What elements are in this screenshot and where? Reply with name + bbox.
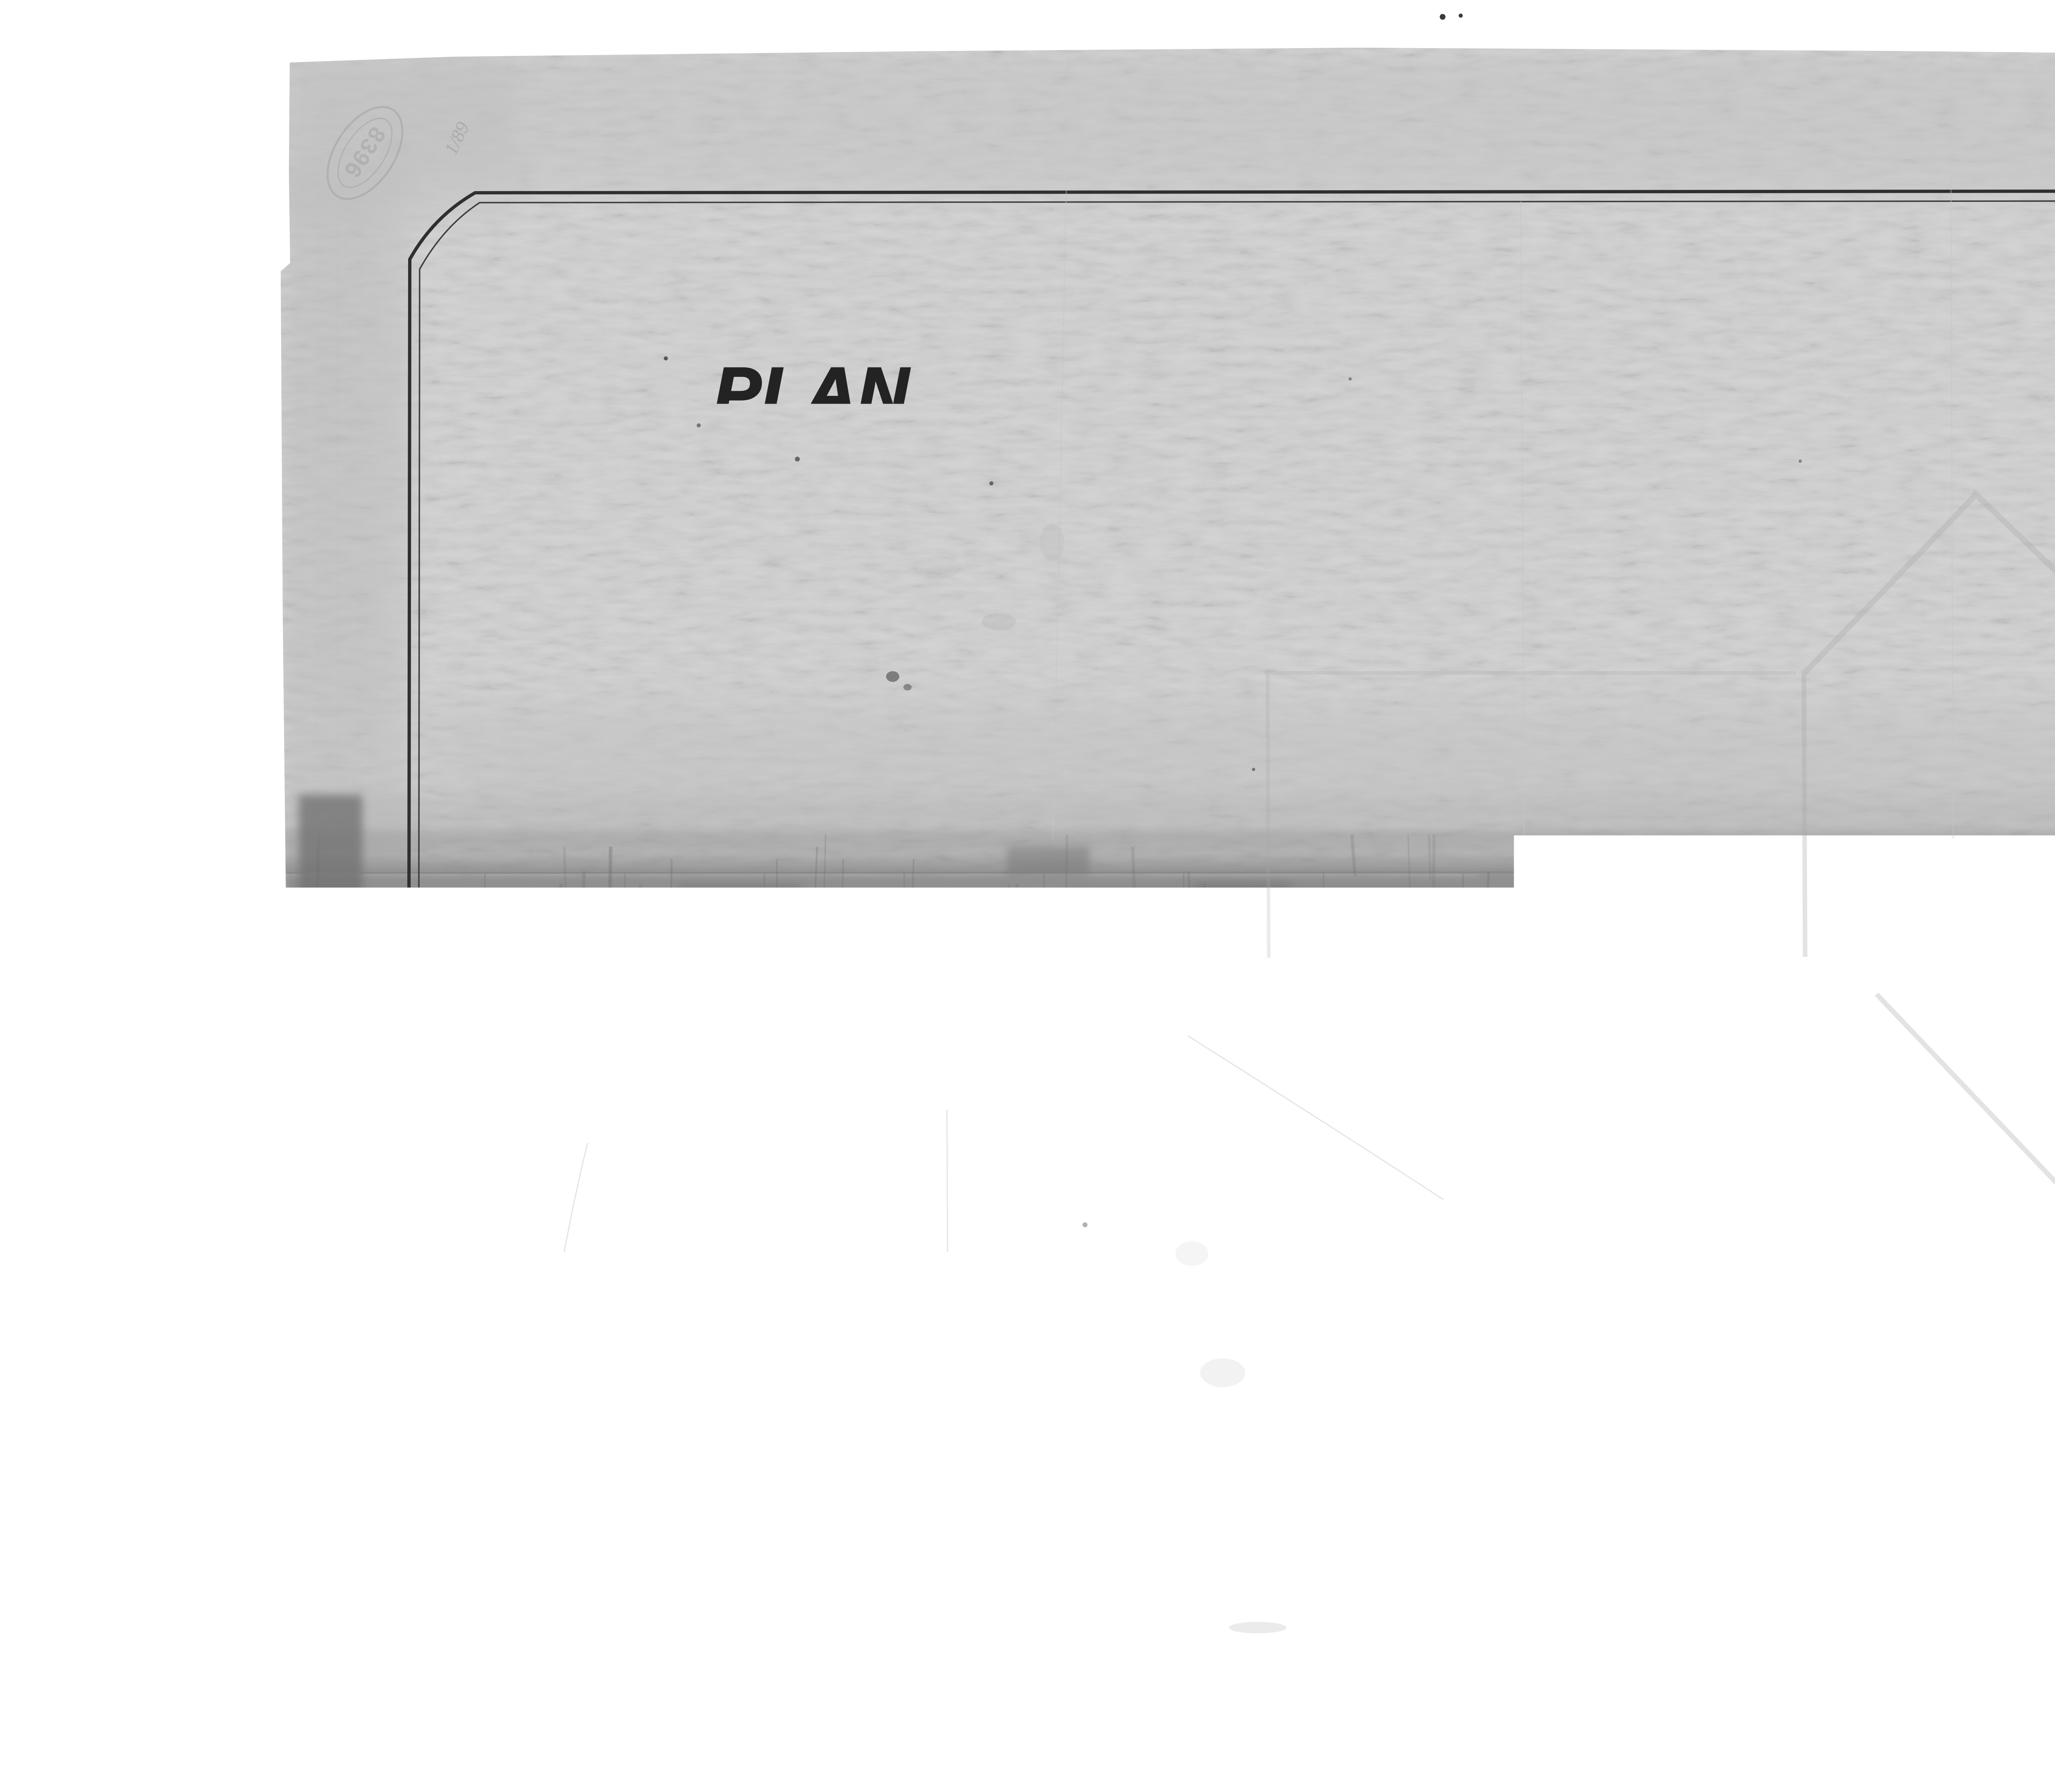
svg-text:17th June 1903.: 17th June 1903. xyxy=(1177,1536,1291,1555)
svg-text:LOT 5, GROUP 12.: LOT 5, GROUP 12. xyxy=(2005,944,2055,977)
svg-text:S. 89°33'E: S. 89°33'E xyxy=(1480,647,1562,664)
svg-text:LOT 4, GROUP 12.: LOT 4, GROUP 12. xyxy=(1394,768,1662,801)
svg-text:March 1903.: March 1903. xyxy=(748,643,883,672)
svg-text:……: …… xyxy=(666,1408,697,1425)
svg-text:701.1: 701.1 xyxy=(1794,796,1812,840)
svg-text:1320.1: 1320.1 xyxy=(1486,674,1539,691)
svg-text:General, faithfully and correc: General, faithfully and correctly execut… xyxy=(650,1261,1057,1278)
svg-text:I RAOUL RINFRET of Dawson City: I RAOUL RINFRET of Dawson City, Y. T. Do… xyxy=(658,1210,1026,1227)
svg-text:4: 4 xyxy=(802,1384,812,1405)
svg-text:of my knowledge and belief. So: of my knowledge and belief. So help me G… xyxy=(650,1295,948,1312)
svg-text:A Commissioner etc.: A Commissioner etc. xyxy=(693,1466,847,1483)
svg-text:Surveyor General: Surveyor General xyxy=(1206,1596,1306,1608)
svg-text:May: May xyxy=(719,1399,760,1424)
svg-text:LOTS 4 AND 5 GROUP 12: LOTS 4 AND 5 GROUP 12 xyxy=(536,460,1116,511)
svg-text:730.2: 730.2 xyxy=(1256,862,1274,905)
svg-text:Sworn before me at: Sworn before me at xyxy=(670,1367,813,1385)
svg-text:N 0°27'E: N 0°27'E xyxy=(1777,775,1795,843)
svg-text:Ottawa,: Ottawa, xyxy=(1115,1540,1164,1557)
svg-text:Scale 200 feet=1 inch.: Scale 200 feet=1 inch. xyxy=(716,683,879,703)
svg-text:Y. T.: Y. T. xyxy=(770,510,880,561)
svg-text:OF: OF xyxy=(801,434,830,454)
svg-text:Surveyor, make oath and say th: Surveyor, make oath and say that I have,… xyxy=(650,1227,1037,1244)
svg-text:INTERIOR: INTERIOR xyxy=(1165,1509,1257,1524)
svg-text:PLAN: PLAN xyxy=(714,353,910,432)
svg-text:AREA 20 ACRES.: AREA 20 ACRES. xyxy=(1449,804,1607,824)
svg-text:person, according to law and t: person, according to law and the instruc… xyxy=(651,1244,1049,1261)
svg-text:LOT 3.: LOT 3. xyxy=(1127,723,1215,752)
svg-text:th: th xyxy=(818,1386,827,1398)
svg-text:D. L. S.: D. L. S. xyxy=(858,1342,942,1364)
svg-text:APPROVED AND CONFIRMED.: APPROVED AND CONFIRMED. xyxy=(1109,1559,1303,1573)
svg-text:Surveyed by R.Rinfret D.L.S.: Surveyed by R.Rinfret D.L.S. xyxy=(661,614,972,644)
svg-text:AREA 45.51 ACRES.: AREA 45.51 ACRES. xyxy=(2040,976,2055,998)
svg-text:N 0°27'E: N 0°27'E xyxy=(1238,848,1256,916)
svg-text:this plan and that the said pl: this plan and that the said plan is corr… xyxy=(650,1278,1046,1295)
